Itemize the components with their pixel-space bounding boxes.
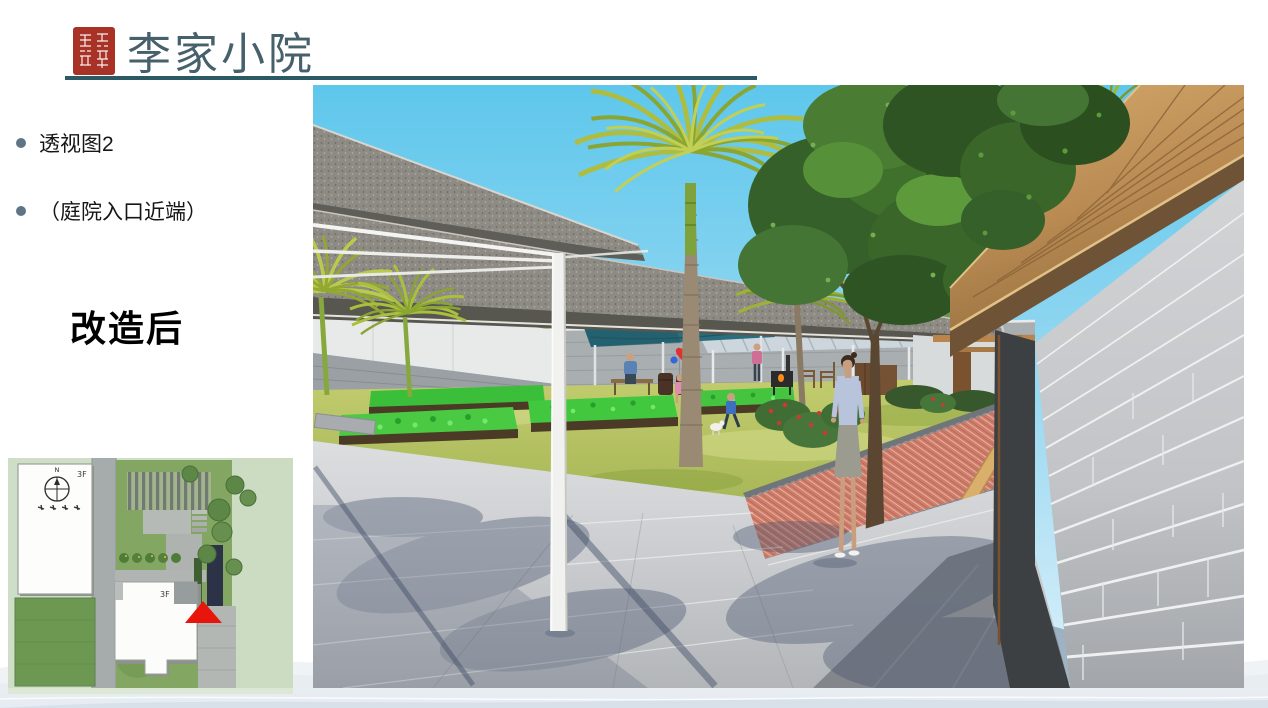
bullet-label: （庭院入口近端） <box>39 196 207 226</box>
title-underline <box>65 76 757 80</box>
seal-stamp-icon <box>73 27 115 75</box>
building-footprint: 3F <box>115 582 201 676</box>
courtyard-rendering-image <box>313 85 1244 688</box>
plan-lawn <box>15 598 95 686</box>
bullet-dot-icon <box>16 206 26 216</box>
presentation-slide: 李家小院 透视图2 （庭院入口近端） 改造后 <box>0 0 1268 708</box>
bullet-dot-icon <box>16 138 26 148</box>
bullet-list: 透视图2 （庭院入口近端） <box>16 128 207 264</box>
neighbor-building: 3F N <box>18 464 94 596</box>
site-plan-image: 3F 3F <box>8 458 293 698</box>
bullet-label: 透视图2 <box>39 128 114 158</box>
bullet-item: 透视图2 <box>16 128 207 158</box>
bullet-item: （庭院入口近端） <box>16 196 207 226</box>
road <box>92 458 116 691</box>
pergola-grid <box>127 472 211 510</box>
state-label: 改造后 <box>70 300 184 352</box>
floor-label: 3F <box>160 590 170 599</box>
floor-label: 3F <box>77 470 87 479</box>
sitting-man <box>626 353 634 361</box>
north-label: N <box>55 466 60 474</box>
footer-wave-decoration <box>0 694 1268 708</box>
page-title: 李家小院 <box>127 18 315 82</box>
